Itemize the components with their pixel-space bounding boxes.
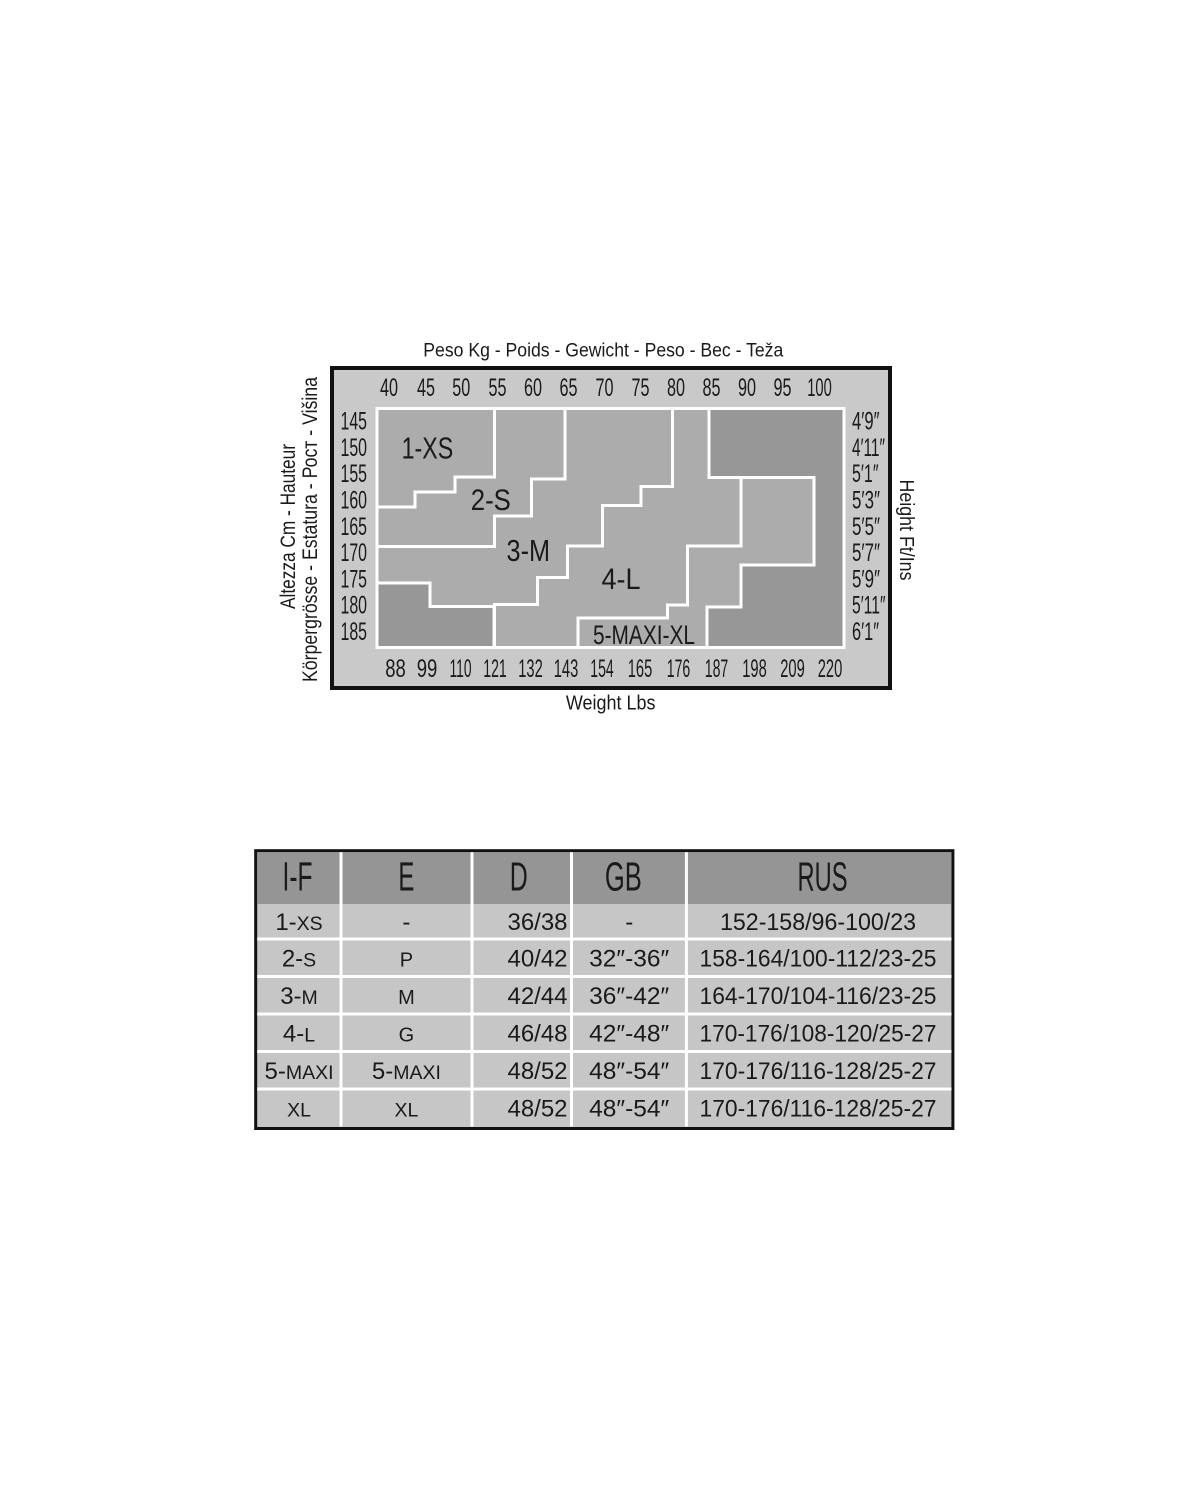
svg-text:5′5″: 5′5″ [852,513,880,541]
svg-text:2-S: 2-S [471,484,511,517]
svg-text:5′9″: 5′9″ [852,565,880,593]
svg-text:G: G [399,1025,415,1047]
svg-text:42″-48″: 42″-48″ [589,1021,670,1048]
svg-text:48″-54″: 48″-54″ [589,1058,670,1085]
svg-text:XL: XL [394,1100,418,1122]
svg-text:RUS: RUS [798,854,848,900]
svg-text:M: M [398,987,415,1009]
svg-text:143: 143 [554,655,579,683]
svg-text:176: 176 [667,655,691,683]
svg-text:XL: XL [287,1100,311,1122]
svg-text:155: 155 [341,460,368,488]
svg-text:4-L: 4-L [602,563,641,596]
svg-text:48″-54″: 48″-54″ [589,1096,670,1123]
svg-text:180: 180 [341,592,368,620]
svg-text:Altezza Cm - Hauteur: Altezza Cm - Hauteur [276,444,300,609]
svg-text:32″-36″: 32″-36″ [589,946,670,973]
svg-text:5′1″: 5′1″ [852,460,879,488]
svg-text:1-XS: 1-XS [402,431,454,466]
svg-text:164-170/104-116/23-25: 164-170/104-116/23-25 [700,983,937,1010]
svg-text:154: 154 [590,655,614,683]
svg-text:5′7″: 5′7″ [852,539,880,567]
svg-text:175: 175 [341,565,368,593]
svg-text:5-MAXI: 5-MAXI [372,1058,441,1085]
svg-text:165: 165 [341,513,368,541]
svg-text:3-M: 3-M [280,983,318,1010]
svg-text:80: 80 [667,374,685,402]
svg-text:P: P [400,950,413,972]
svg-text:152-158/96-100/23: 152-158/96-100/23 [720,909,916,936]
svg-text:48/52: 48/52 [507,1096,567,1123]
svg-text:45: 45 [417,374,435,402]
svg-text:Height Ft/Ins: Height Ft/Ins [895,480,917,581]
svg-text:99: 99 [417,655,438,683]
svg-text:121: 121 [483,655,507,683]
svg-text:65: 65 [560,374,578,402]
svg-text:5′3″: 5′3″ [852,487,880,515]
svg-text:132: 132 [518,655,543,683]
svg-text:160: 160 [341,487,368,515]
svg-text:46/48: 46/48 [507,1021,567,1048]
svg-text:198: 198 [742,655,767,683]
svg-text:165: 165 [628,655,653,683]
svg-text:55: 55 [489,374,507,402]
svg-text:4-L: 4-L [283,1021,315,1048]
svg-text:5′11″: 5′11″ [852,592,886,620]
svg-text:1-XS: 1-XS [275,909,322,936]
svg-text:170-176/116-128/25-27: 170-176/116-128/25-27 [700,1096,937,1123]
svg-text:5-MAXI: 5-MAXI [264,1058,333,1085]
svg-text:-: - [402,909,410,936]
svg-text:Körpergrösse - Estatura - Рост: Körpergrösse - Estatura - Рост - Višina [298,377,322,682]
svg-text:50: 50 [452,374,470,402]
svg-text:95: 95 [774,374,792,402]
svg-text:85: 85 [703,374,721,402]
svg-text:-: - [625,909,633,936]
svg-text:5-MAXI-XL: 5-MAXI-XL [593,620,695,650]
svg-text:I-F: I-F [283,854,313,900]
svg-text:Weight Lbs: Weight Lbs [566,692,656,715]
svg-text:100: 100 [807,374,832,402]
svg-text:110: 110 [450,655,472,683]
svg-text:GB: GB [605,854,642,900]
svg-text:75: 75 [632,374,650,402]
svg-text:42/44: 42/44 [507,983,567,1010]
svg-text:220: 220 [818,655,843,683]
svg-text:60: 60 [524,374,542,402]
svg-text:36″-42″: 36″-42″ [589,983,670,1010]
svg-text:185: 185 [341,618,368,646]
svg-text:40/42: 40/42 [507,946,567,973]
svg-text:187: 187 [705,655,729,683]
svg-text:70: 70 [596,374,614,402]
svg-text:40: 40 [380,374,398,402]
svg-text:E: E [398,854,414,900]
svg-text:88: 88 [385,655,406,683]
svg-text:6′1″: 6′1″ [852,618,879,646]
svg-text:2-S: 2-S [282,946,316,973]
svg-text:145: 145 [341,408,368,436]
svg-text:3-M: 3-M [507,533,551,568]
svg-text:170-176/108-120/25-27: 170-176/108-120/25-27 [700,1021,937,1048]
svg-text:36/38: 36/38 [507,909,567,936]
svg-text:4′9″: 4′9″ [852,408,880,436]
svg-text:4′11″: 4′11″ [852,434,885,462]
svg-text:158-164/100-112/23-25: 158-164/100-112/23-25 [700,946,937,973]
svg-text:Peso Kg - Poids - Gewicht - Pe: Peso Kg - Poids - Gewicht - Peso - Bec -… [423,340,783,362]
svg-text:150: 150 [341,434,368,462]
svg-text:48/52: 48/52 [507,1058,567,1085]
svg-text:209: 209 [780,655,805,683]
svg-text:90: 90 [738,374,756,402]
svg-text:D: D [510,854,528,900]
svg-text:170-176/116-128/25-27: 170-176/116-128/25-27 [700,1058,937,1085]
svg-text:170: 170 [341,539,368,567]
